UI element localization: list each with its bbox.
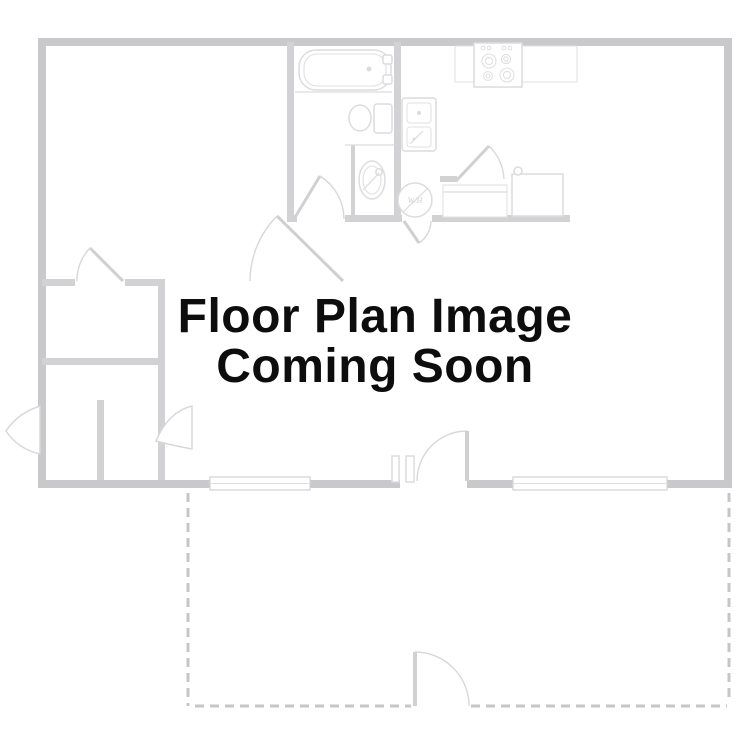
water-heater: W/H bbox=[398, 183, 432, 217]
hall-closet-door bbox=[6, 406, 40, 454]
placeholder-caption-line2: Coming Soon bbox=[0, 342, 750, 392]
patio-door bbox=[417, 431, 467, 481]
bedroom-closet-door bbox=[77, 248, 123, 281]
water-heater-door bbox=[404, 221, 431, 243]
window-1 bbox=[210, 477, 310, 490]
interior-walls bbox=[42, 42, 570, 480]
kitchen-sink bbox=[402, 98, 436, 151]
toilet bbox=[349, 104, 392, 133]
placeholder-caption: Floor Plan Image Coming Soon bbox=[0, 292, 750, 392]
refrigerator bbox=[512, 167, 563, 216]
water-heater-label: W/H bbox=[408, 196, 424, 205]
stove bbox=[474, 43, 522, 87]
bathtub bbox=[295, 50, 392, 92]
floor-plan-placeholder: W/H bbox=[0, 0, 750, 750]
bathroom-door bbox=[294, 176, 344, 219]
kitchen-door bbox=[456, 146, 504, 181]
patio-gate bbox=[415, 652, 469, 706]
patio-door-frame bbox=[392, 456, 414, 482]
bedroom-door bbox=[250, 216, 343, 281]
pedestal-sink bbox=[359, 161, 385, 199]
kitchen-counter-peninsula bbox=[443, 185, 507, 217]
window-2 bbox=[513, 477, 667, 490]
placeholder-caption-line1: Floor Plan Image bbox=[0, 292, 750, 342]
